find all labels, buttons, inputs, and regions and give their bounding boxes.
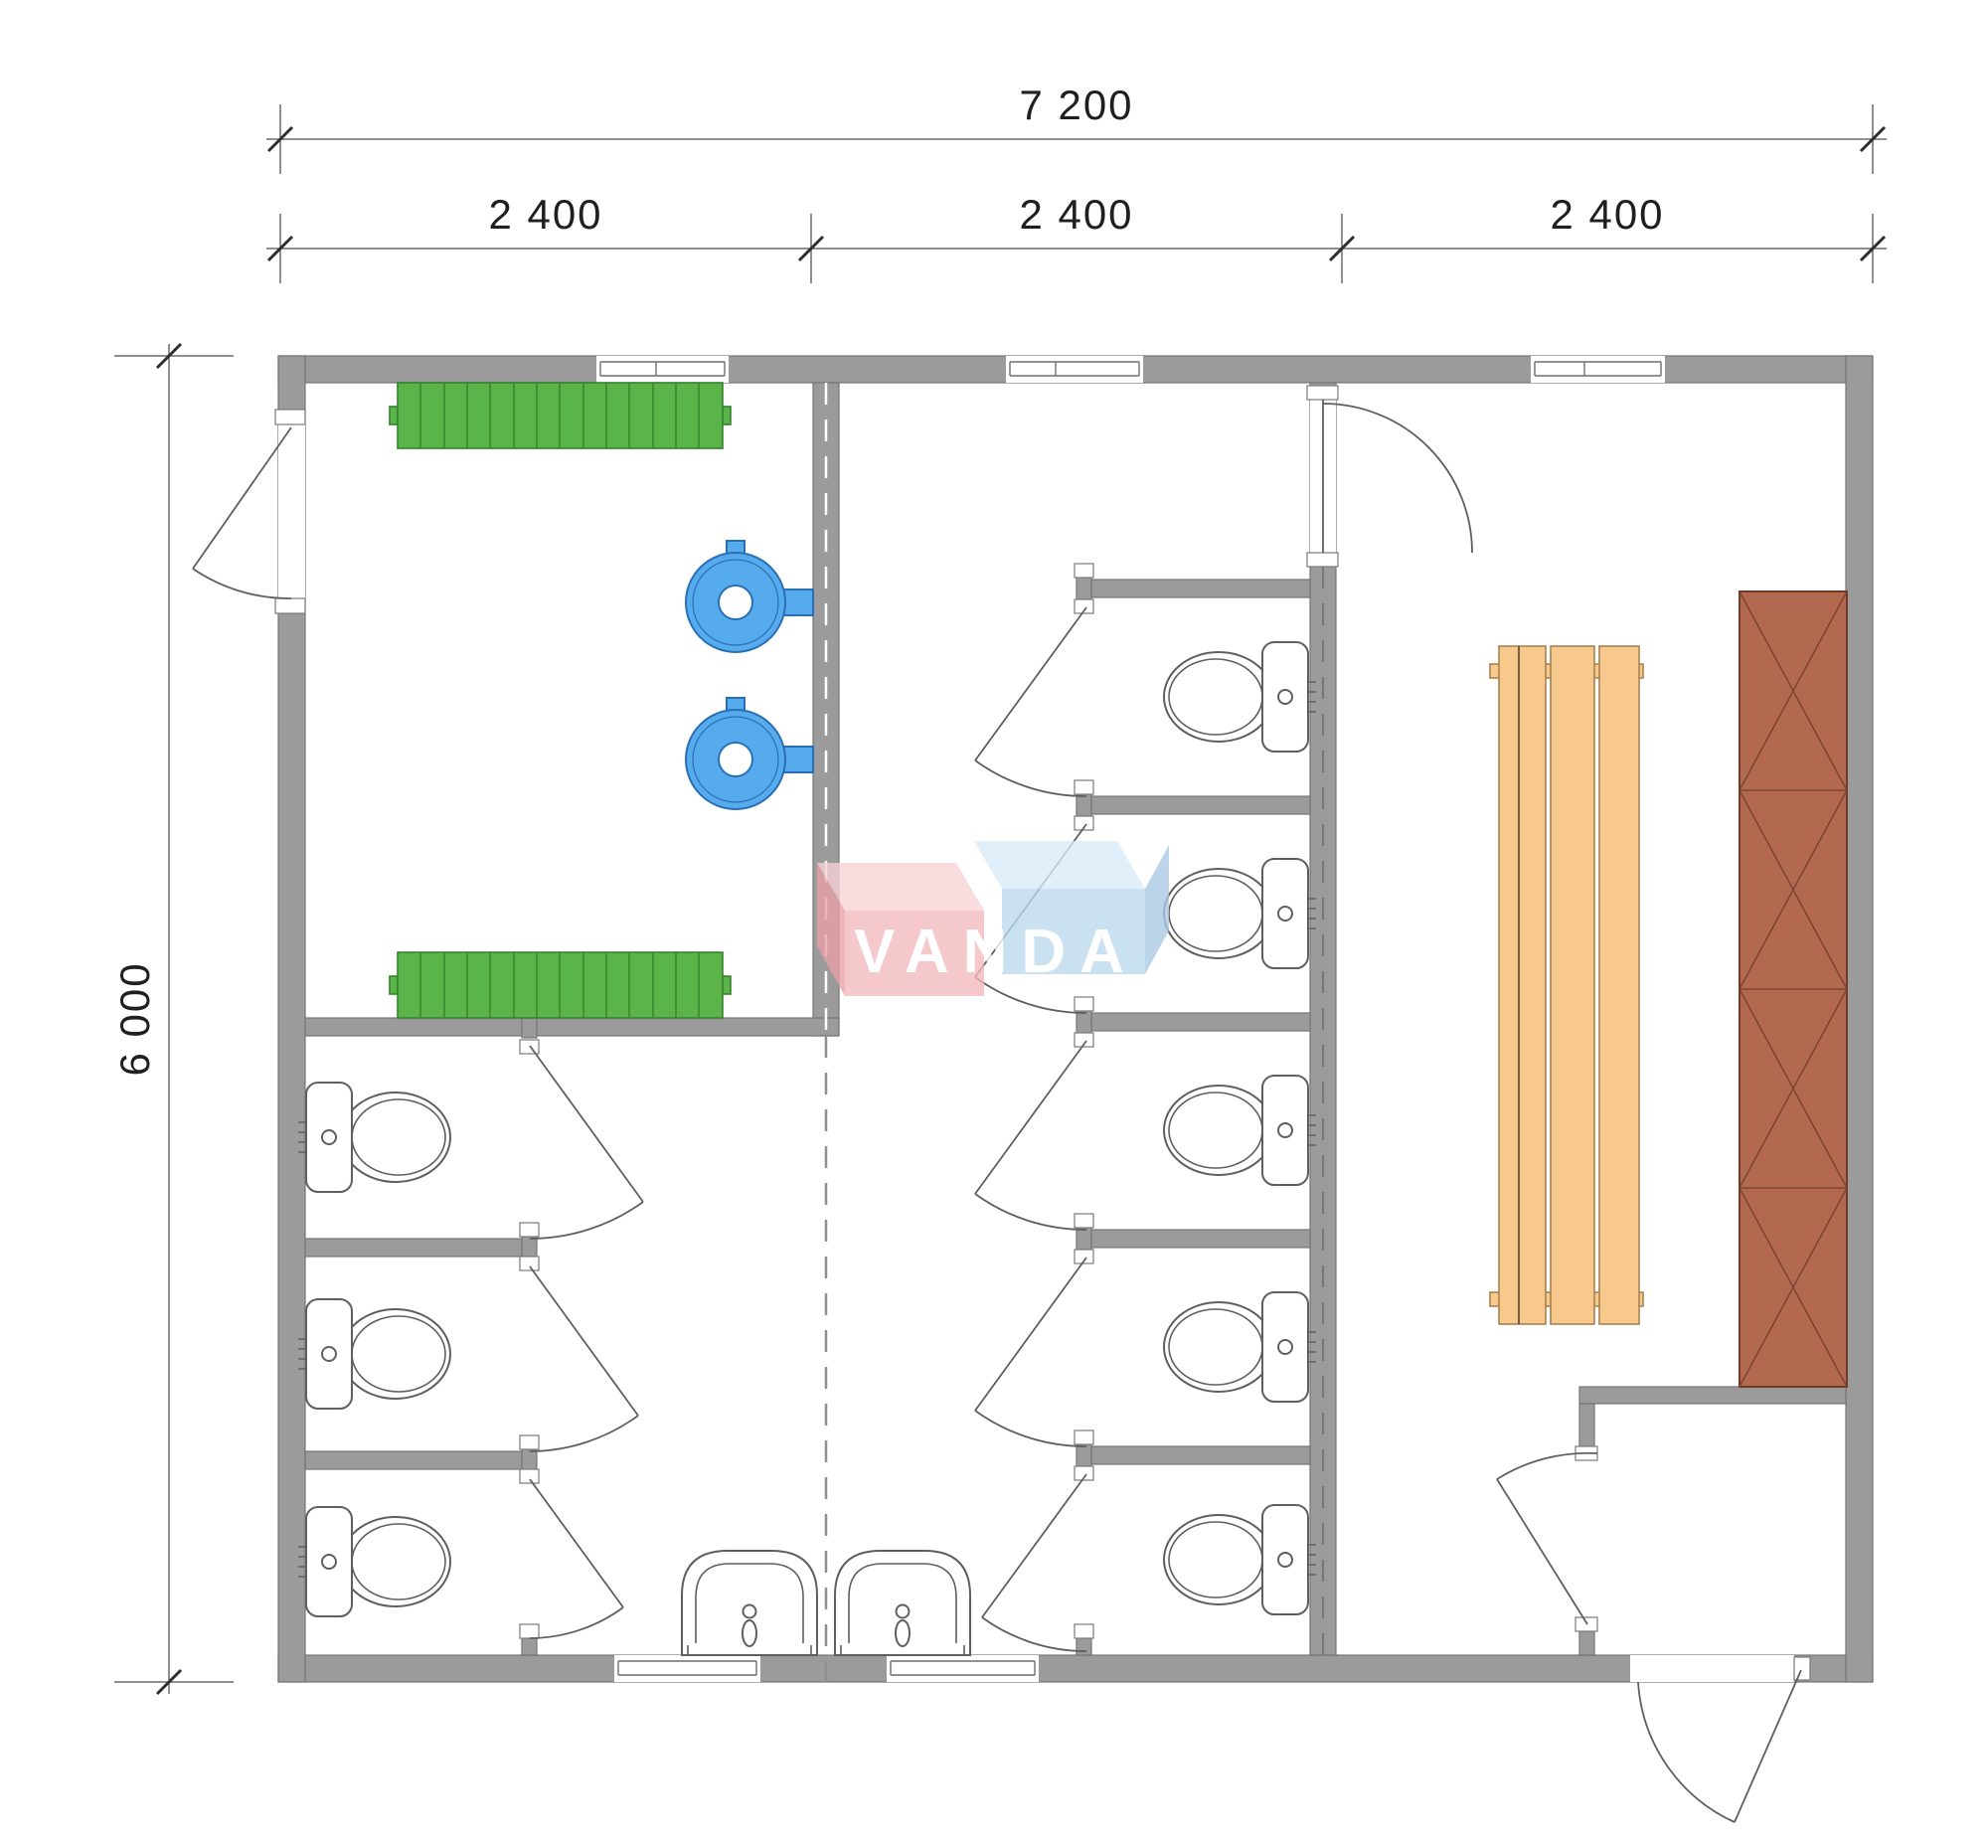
wall-vestibule-stub	[1579, 1404, 1594, 1446]
toilet	[1164, 1292, 1316, 1402]
stall-divider	[1081, 580, 1310, 597]
dimension-segments: 2 400 2 400 2 400	[266, 191, 1887, 283]
toilet	[298, 1507, 450, 1616]
stall-end-cap	[522, 1449, 537, 1471]
toilet	[1164, 642, 1316, 752]
vanda-logo: VANDA	[817, 841, 1169, 996]
stall-end-cap	[1077, 1444, 1091, 1466]
toilet	[298, 1299, 450, 1409]
door-exterior-bottom-right	[1638, 1670, 1801, 1822]
dim-label-height: 6 000	[111, 961, 158, 1076]
wall-exterior-right	[1846, 356, 1873, 1682]
dim-label-segment-2: 2 400	[1019, 191, 1133, 238]
stall-end-cap	[522, 1638, 537, 1655]
logo-blue-box-top	[974, 841, 1145, 889]
stall-end-cap	[1077, 1011, 1091, 1033]
toilet	[1164, 1505, 1316, 1614]
stall-divider	[305, 1239, 522, 1257]
door-stall	[530, 1046, 643, 1239]
toilet	[1164, 1076, 1316, 1185]
wall-vestibule-top	[1579, 1387, 1846, 1404]
stall-divider	[1081, 796, 1310, 814]
door-stall	[975, 1258, 1086, 1446]
stall-divider	[1081, 1013, 1310, 1031]
window	[1006, 356, 1143, 383]
door-exterior-left	[193, 427, 291, 598]
dim-label-segment-1: 2 400	[488, 191, 602, 238]
dim-label-segment-3: 2 400	[1550, 191, 1664, 238]
logo-pink-box-top	[817, 863, 984, 911]
dimension-total-width: 7 200	[266, 82, 1887, 174]
cabinet	[1739, 591, 1847, 1387]
water-heater	[686, 698, 813, 809]
sink	[835, 1551, 970, 1655]
logo-text: VANDA	[854, 918, 1138, 986]
stall-end-cap	[522, 1016, 537, 1038]
stall-end-cap	[522, 1237, 537, 1259]
green-benches	[390, 383, 731, 1018]
stall-end-cap	[1077, 794, 1091, 816]
stall-divider	[305, 1451, 522, 1469]
window	[614, 1655, 760, 1682]
green-bench	[390, 952, 731, 1018]
toilet	[298, 1083, 450, 1192]
wood-bench	[1490, 646, 1643, 1324]
stall-end-cap	[1077, 578, 1091, 599]
door-stall	[530, 1266, 638, 1451]
door-vestibule	[1497, 1453, 1597, 1624]
water-heater	[686, 541, 813, 652]
toilet	[1164, 859, 1316, 968]
green-bench	[390, 383, 731, 448]
window	[887, 1655, 1039, 1682]
floor-plan-page: 7 200 2 400 2 400 2 400 6 000 VANDA	[0, 0, 1988, 1848]
logo-blue-box-side	[1145, 845, 1169, 974]
stall-end-cap	[1077, 1638, 1091, 1655]
dim-label-total: 7 200	[1019, 82, 1133, 128]
window	[1531, 356, 1665, 383]
door-opening-exterior-left	[278, 424, 305, 598]
dimension-height: 6 000	[111, 344, 234, 1694]
stall-divider	[1081, 1446, 1310, 1464]
door-stall	[982, 1474, 1086, 1651]
water-heaters	[686, 541, 813, 809]
floor-plan-drawing: 7 200 2 400 2 400 2 400 6 000 VANDA	[0, 0, 1988, 1848]
stall-end-cap	[1077, 1228, 1091, 1250]
door-right-room	[1323, 400, 1472, 553]
wall-left-room-bottom	[305, 1018, 839, 1036]
stall-divider	[1081, 1230, 1310, 1248]
sink	[682, 1551, 817, 1655]
door-stall	[530, 1479, 623, 1638]
window	[596, 356, 729, 383]
door-stall	[975, 607, 1086, 796]
toilets	[298, 642, 1316, 1616]
door-stall	[975, 1041, 1086, 1230]
door-opening-exterior-bottom-right	[1630, 1655, 1794, 1682]
wall-vestibule-stub	[1579, 1631, 1594, 1655]
